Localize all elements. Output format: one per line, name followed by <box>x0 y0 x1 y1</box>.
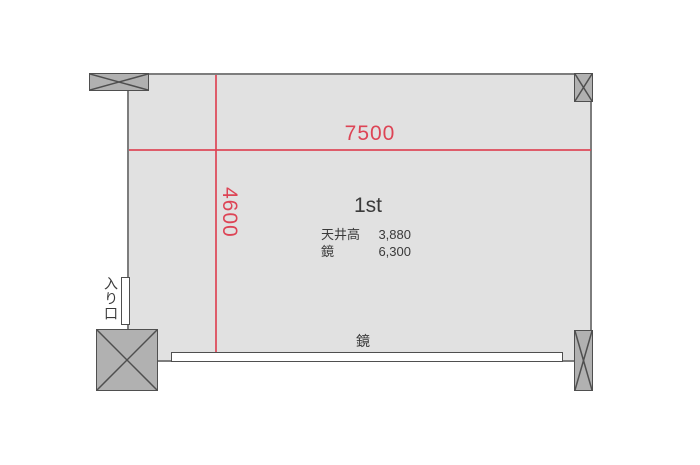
x-brace-icon <box>575 331 592 390</box>
mirror-length-value: 6,300 <box>378 243 411 260</box>
room-name-label: 1st <box>320 194 416 218</box>
entrance-label: 入り口 <box>101 276 121 330</box>
column-bottom-right <box>574 330 593 391</box>
dimension-line-width <box>129 149 591 151</box>
dimension-depth-label: 4600 <box>217 187 241 238</box>
column-top-right <box>574 73 593 102</box>
floor-plan: 7500 4600 1st 天井高 3,880 鏡 6,300 入り口 鏡 <box>0 0 700 465</box>
room-specs: 天井高 3,880 鏡 6,300 <box>321 226 411 260</box>
dimension-width-label: 7500 <box>300 122 440 146</box>
ceiling-height-label: 天井高 <box>321 226 360 243</box>
column-bottom-left <box>96 329 158 391</box>
x-brace-icon <box>90 74 148 90</box>
entrance-door <box>121 277 130 325</box>
mirror-length-label: 鏡 <box>321 243 334 260</box>
spec-row-mirror-length: 鏡 6,300 <box>321 243 411 260</box>
x-brace-icon <box>97 330 157 390</box>
mirror-label: 鏡 <box>340 331 386 351</box>
spec-row-ceiling-height: 天井高 3,880 <box>321 226 411 243</box>
column-top-left <box>89 73 149 91</box>
mirror-bar <box>171 352 563 362</box>
ceiling-height-value: 3,880 <box>378 226 411 243</box>
x-brace-icon <box>575 74 592 101</box>
